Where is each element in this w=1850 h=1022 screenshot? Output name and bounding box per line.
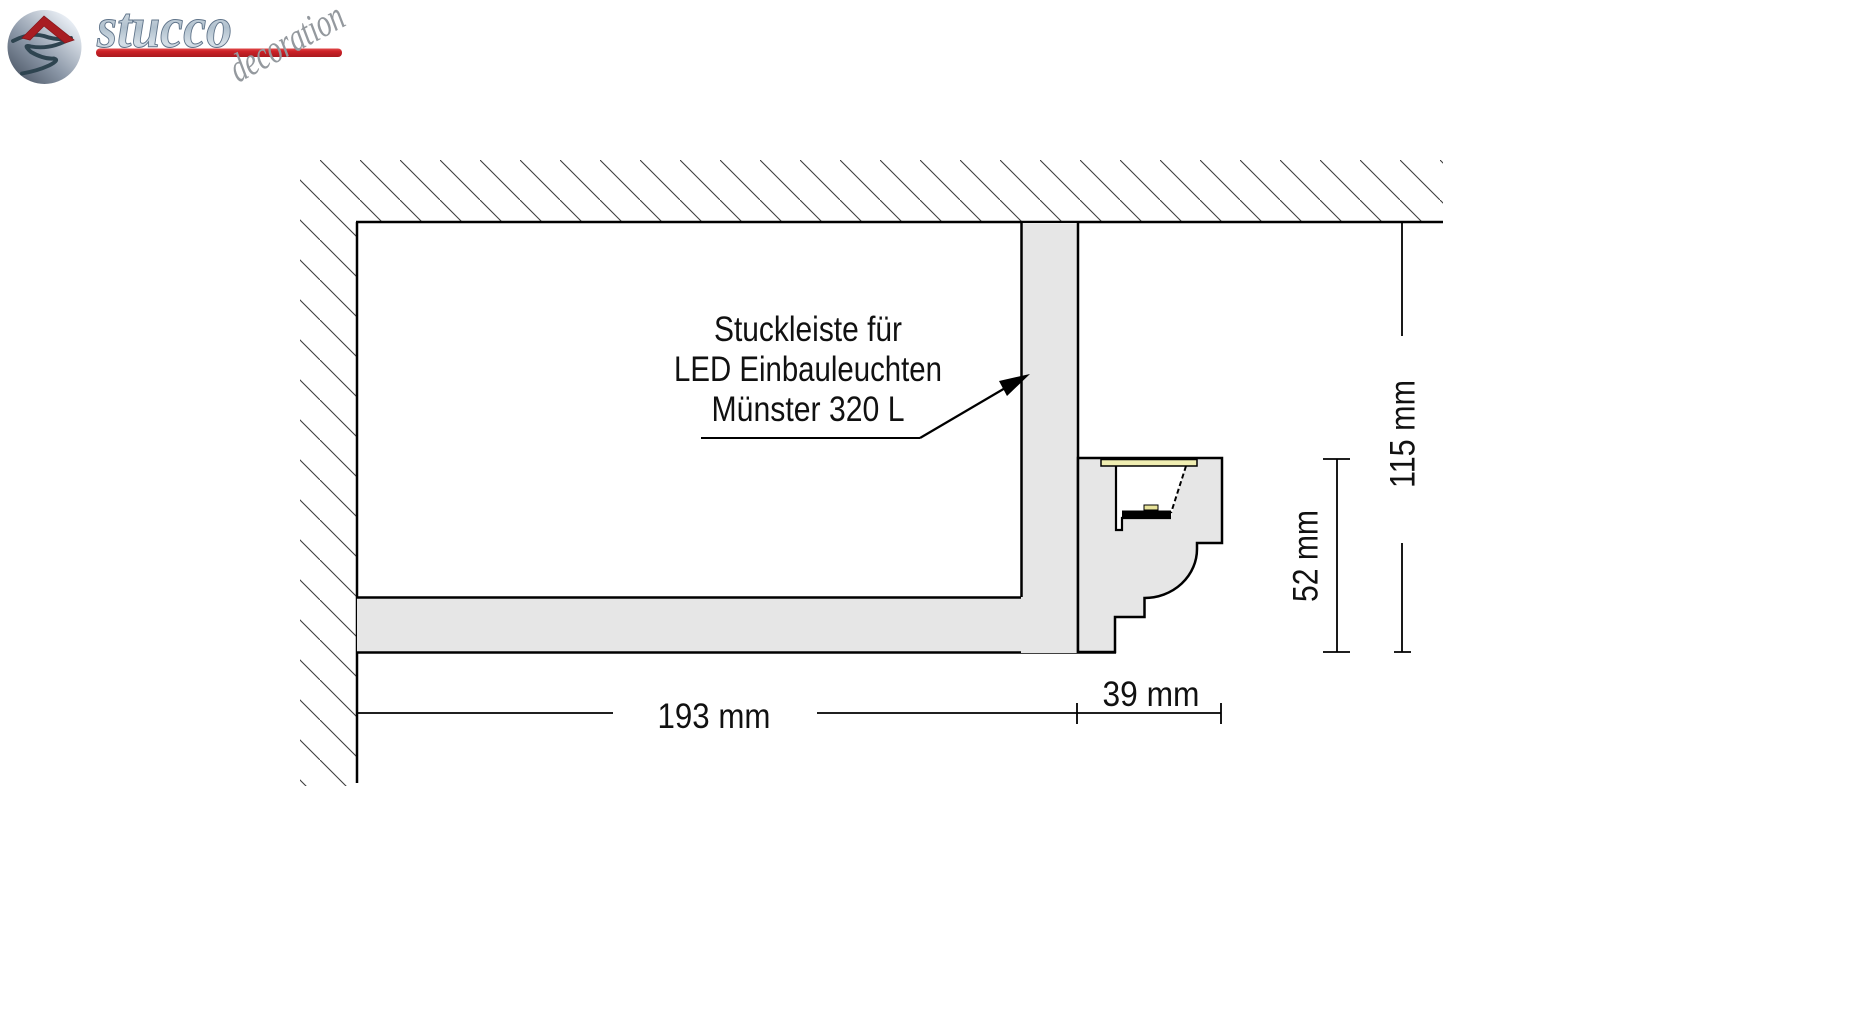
svg-text:stucco: stucco	[96, 0, 232, 60]
svg-text:193 mm: 193 mm	[658, 697, 771, 736]
svg-text:39 mm: 39 mm	[1103, 675, 1200, 714]
svg-text:Stuckleiste für: Stuckleiste für	[714, 310, 902, 349]
svg-text:LED Einbauleuchten: LED Einbauleuchten	[674, 350, 942, 389]
svg-text:52 mm: 52 mm	[1287, 510, 1326, 602]
svg-text:Münster 320 L: Münster 320 L	[712, 390, 905, 429]
svg-text:115 mm: 115 mm	[1384, 380, 1423, 488]
